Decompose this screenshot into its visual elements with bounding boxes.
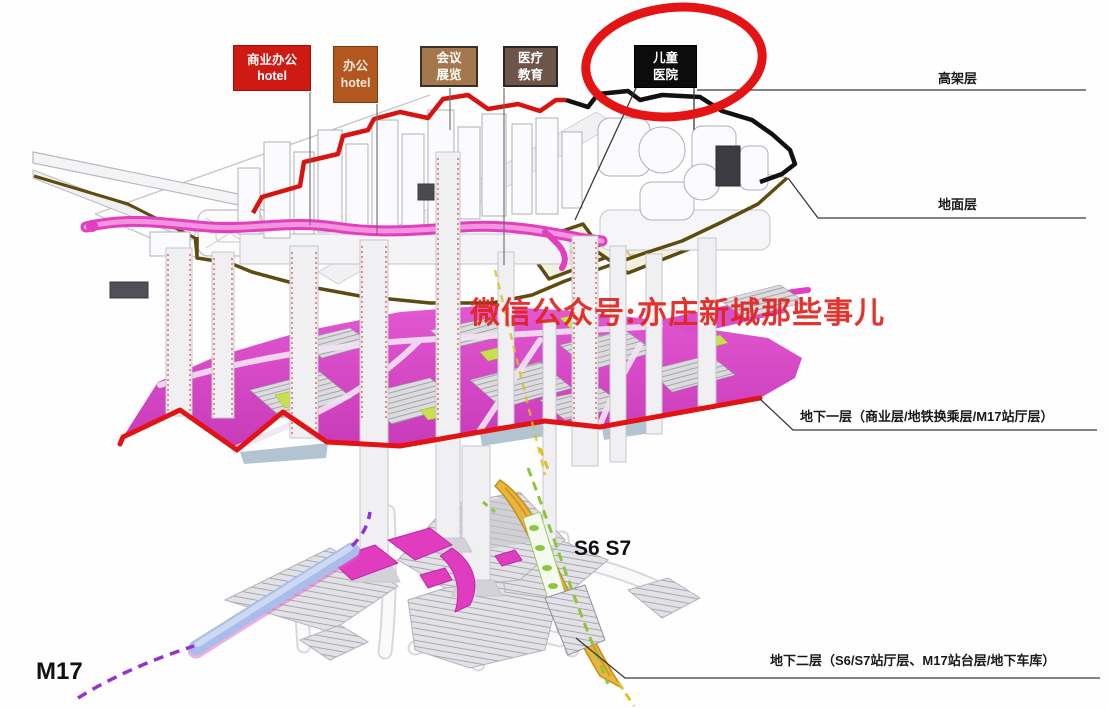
layer-label-elevated: 高架层 xyxy=(938,68,977,87)
label-commercial-office-hotel: 商业办公 hotel xyxy=(233,45,311,91)
label-line: 教育 xyxy=(518,67,543,83)
label-line: 展览 xyxy=(436,67,461,83)
layer-label-ground: 地面层 xyxy=(938,194,977,213)
label-line: hotel xyxy=(341,75,371,91)
watermark-text: 微信公众号:亦庄新城那些事儿 xyxy=(470,288,885,332)
label-line: 会议 xyxy=(436,50,461,66)
m17-line-label: M17 xyxy=(36,658,83,686)
label-medical-education: 医疗 教育 xyxy=(503,46,558,87)
s6-s7-station-label: S6 S7 xyxy=(574,537,631,561)
planning-diagram: 商业办公 hotel 办公 hotel 会议 展览 医疗 教育 儿童 医院 高架… xyxy=(0,0,1108,708)
label-office-hotel: 办公 hotel xyxy=(333,46,378,103)
label-conference-exhibition: 会议 展览 xyxy=(420,46,478,87)
label-line: 医疗 xyxy=(518,50,543,66)
label-line: 办公 xyxy=(343,58,368,74)
layer-label-underground-2: 地下二层（S6/S7站厅层、M17站台层/地下车库） xyxy=(770,650,1055,669)
layer-label-underground-1: 地下一层（商业层/地铁换乘层/M17站厅层） xyxy=(800,406,1054,425)
label-line: 商业办公 xyxy=(247,52,297,68)
label-line: hotel xyxy=(257,68,287,84)
axonometric-model xyxy=(0,0,1108,708)
